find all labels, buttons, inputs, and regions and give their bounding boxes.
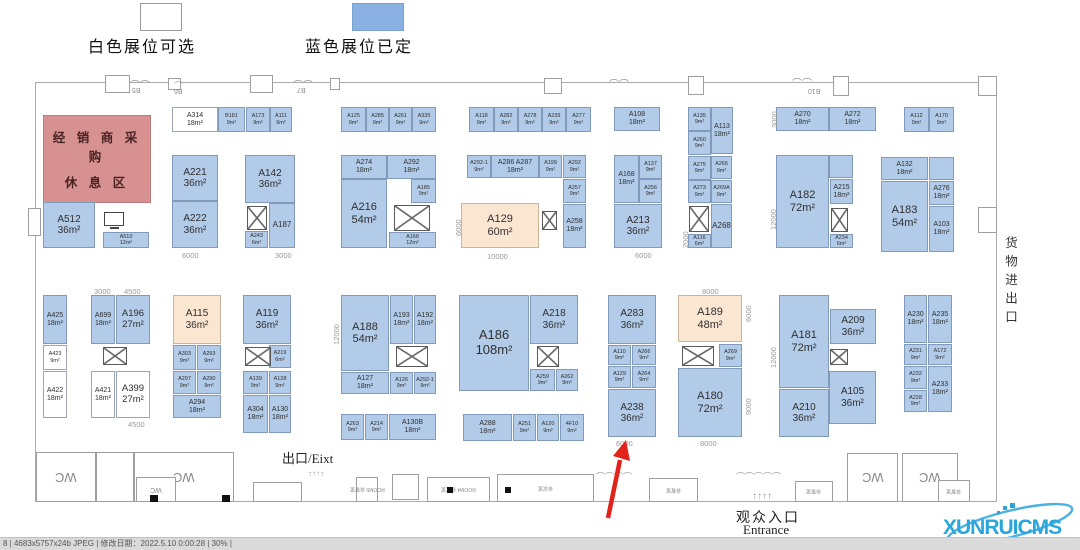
booth-A181[interactable]: A18172m² xyxy=(779,295,829,388)
booth-id: A115 xyxy=(186,308,209,319)
crossbox-icon xyxy=(542,211,557,230)
legend-available-label: 白色展位可选 xyxy=(88,33,196,57)
booth-area: 36m² xyxy=(627,226,650,237)
booth-A297[interactable]: A2979m² xyxy=(173,371,196,394)
booth-id: A222 xyxy=(183,213,206,224)
door-arc-deco: ︵︵ xyxy=(130,70,150,85)
booth-id: A276 xyxy=(933,185,949,193)
rest-area: 经 销 商 采 购 休 息 区 xyxy=(43,115,151,203)
room: 会客室 xyxy=(649,478,698,502)
booth-A290[interactable]: A2909m² xyxy=(197,371,221,394)
booth-A215[interactable]: A21518m² xyxy=(830,179,853,204)
booth-A173[interactable]: A1739m² xyxy=(246,107,270,132)
door-arc-deco: ︵︵ xyxy=(293,70,313,85)
crossbox-icon xyxy=(245,347,271,366)
booth-area: 18m² xyxy=(932,319,948,327)
booth-id: A119 xyxy=(256,308,279,319)
booth-A233[interactable]: A23318m² xyxy=(928,366,952,412)
booth-id: A187 xyxy=(273,221,292,230)
booth-A239[interactable]: A2399m² xyxy=(542,107,566,132)
booth-area: 9m² xyxy=(639,355,648,361)
booth-area: 18m² xyxy=(404,167,420,175)
booth-A294[interactable]: A29418m² xyxy=(173,395,221,418)
booth-id: A233 xyxy=(932,381,948,389)
booth-area: 27m² xyxy=(122,395,144,406)
booth-area: 9m² xyxy=(538,380,547,386)
monitor-icon xyxy=(104,212,124,226)
booth-area: 9m² xyxy=(726,356,735,362)
booth-A139[interactable]: A1399m² xyxy=(243,371,268,394)
booth-A185[interactable]: A1859m² xyxy=(411,179,436,203)
booth-area: 9m² xyxy=(912,120,921,126)
booth-id: A142 xyxy=(258,168,281,179)
dimension-label: 8000 xyxy=(700,439,717,448)
booth-A132[interactable]: A13218m² xyxy=(881,157,928,180)
booth-area: 6m² xyxy=(275,357,284,363)
door-arc-deco: ︵︵ xyxy=(792,68,812,83)
booth-area: 9m² xyxy=(935,355,944,361)
booth-id: A421 xyxy=(95,387,111,395)
booth-A189[interactable]: A18948m² xyxy=(678,295,742,342)
booth-A269[interactable]: A2699m² xyxy=(719,344,742,367)
logo-text: XUNRUICMS xyxy=(943,516,1062,539)
booth-id: A168 xyxy=(618,171,634,179)
booth-area: 36m² xyxy=(842,327,865,338)
booth-A268[interactable]: A268 xyxy=(711,204,732,248)
room: 会客室 xyxy=(795,481,833,502)
booth-A126[interactable]: A1269m² xyxy=(390,372,413,394)
booth-area: 18m² xyxy=(934,193,950,201)
booth-area: 72m² xyxy=(697,403,722,415)
booth-id: A283 xyxy=(620,308,643,319)
booth-A135[interactable]: A1359m² xyxy=(688,107,711,131)
dimension-label: 6000 xyxy=(182,251,199,260)
booth-id: A130B xyxy=(402,419,423,427)
booth-area: 9m² xyxy=(419,120,428,126)
room: WC xyxy=(36,452,96,502)
booth-A270[interactable]: A27018m² xyxy=(776,107,829,131)
dimension-label: 3000 xyxy=(94,287,111,296)
booth-A116[interactable]: A1166m² xyxy=(688,234,711,248)
booth-id: A180 xyxy=(697,390,723,402)
crossbox-icon xyxy=(394,205,430,231)
booth-area: 9m² xyxy=(204,358,213,364)
room-label: ROOM5 会客室 xyxy=(350,486,385,493)
booth-area: 9m² xyxy=(396,120,405,126)
booth-area: 36m² xyxy=(621,413,644,424)
booth-A113[interactable]: A11318m² xyxy=(711,107,733,154)
booth-id: A304 xyxy=(247,406,263,414)
booth-A265[interactable]: A2659m² xyxy=(711,156,732,179)
booth-A230[interactable]: A23018m² xyxy=(904,295,927,343)
booth-id: A215 xyxy=(833,184,849,192)
booth-A129[interactable]: A1299m² xyxy=(608,366,631,388)
booth-area: 9m² xyxy=(525,120,534,126)
booth-area: 72m² xyxy=(790,202,815,214)
booth-area: 9m² xyxy=(911,355,920,361)
booth-id: A130 xyxy=(272,406,288,414)
booth-area: 9m² xyxy=(253,120,262,126)
booth-A292[interactable]: A2929m² xyxy=(563,155,586,178)
booth-A186[interactable]: A186108m² xyxy=(459,295,529,391)
wall-pillar xyxy=(105,75,130,93)
booth-A219[interactable]: A2196m² xyxy=(269,345,291,368)
booth-area: 18m² xyxy=(795,119,811,127)
booth-A235[interactable]: A23518m² xyxy=(928,295,952,343)
booth-area: 36m² xyxy=(621,320,644,331)
booth-area: 9m² xyxy=(574,120,583,126)
booth-A110[interactable]: A1109m² xyxy=(608,345,631,365)
room: 会客室 xyxy=(938,480,970,502)
booth-id: A182 xyxy=(790,189,816,201)
booth-A193[interactable]: A19318m² xyxy=(390,295,413,344)
booth-A260[interactable]: A2609m² xyxy=(688,131,711,155)
booth-area: 9m² xyxy=(275,383,284,389)
booth-A422[interactable]: A42218m² xyxy=(43,371,67,418)
wall-pillar xyxy=(978,207,997,233)
booth-area: 18m² xyxy=(95,320,111,328)
door-arc-deco: ︵ xyxy=(174,73,183,86)
booth-A115[interactable]: A11536m² xyxy=(173,295,221,344)
booth-A127[interactable]: A12718m² xyxy=(341,372,389,394)
booth-A510[interactable]: A51012m² xyxy=(103,232,149,248)
booth-A168[interactable]: A16812m² xyxy=(389,232,436,248)
booth-area: 9m² xyxy=(372,427,381,433)
booth-id: A422 xyxy=(47,387,63,395)
crossbox-icon xyxy=(396,346,428,367)
booth-A285[interactable]: A2859m² xyxy=(366,107,389,132)
booth-A258[interactable]: A25818m² xyxy=(563,204,586,248)
dimension-label: 6000 xyxy=(454,219,463,236)
dimension-label: 2000 xyxy=(681,231,690,248)
booth-A263[interactable]: A2639m² xyxy=(341,414,364,440)
booth-id: A186 xyxy=(479,328,509,343)
booth-A103[interactable]: A10318m² xyxy=(929,206,954,252)
booth-area: 9m² xyxy=(695,168,704,174)
legend-available-swatch xyxy=(140,3,182,31)
booth-id: A268 xyxy=(712,222,731,231)
booth-area: 9m² xyxy=(695,143,704,149)
rest-area-line1: 经 销 商 采 购 xyxy=(44,127,150,165)
booth-area: 36m² xyxy=(256,320,279,331)
booth-A266[interactable]: A2669m² xyxy=(632,345,656,365)
booth-area: 9m² xyxy=(50,358,59,364)
booth-A180[interactable]: A18072m² xyxy=(678,368,742,437)
booth-A269A[interactable]: A269A9m² xyxy=(711,180,732,203)
dimension-label: 9000 xyxy=(744,398,753,415)
wall-pillar xyxy=(250,75,273,93)
booth-id: A181 xyxy=(791,329,817,341)
booth-id: A183 xyxy=(892,204,918,216)
wall-pillar xyxy=(544,78,562,94)
booth-A210[interactable]: A21036m² xyxy=(779,389,829,437)
booth-area: 9m² xyxy=(373,120,382,126)
booth-A314[interactable]: A31418m² xyxy=(172,107,218,132)
booth-A335[interactable]: A3359m² xyxy=(412,107,436,132)
booth-area: 108m² xyxy=(476,343,513,358)
booth-area: 18m² xyxy=(480,428,496,436)
door-mark xyxy=(150,495,158,502)
booth-area: 6m² xyxy=(695,241,704,247)
booth-A105[interactable]: A10536m² xyxy=(829,371,876,424)
booth-id: A512 xyxy=(57,214,80,225)
booth-A137[interactable]: A1379m² xyxy=(639,155,662,179)
crossbox-icon xyxy=(831,208,848,232)
door-label-B10: B10 xyxy=(808,87,820,94)
booth-A303[interactable]: A3039m² xyxy=(173,345,196,370)
booth-area: 9m² xyxy=(501,120,510,126)
booth-A221[interactable]: A22136m² xyxy=(172,155,218,201)
booth-A264[interactable]: A2649m² xyxy=(632,366,656,388)
booth-id: A209 xyxy=(841,315,864,326)
booth-A168[interactable]: A16818m² xyxy=(614,155,639,203)
booth-area: 9m² xyxy=(419,191,428,197)
dimension-label: 4500 xyxy=(128,420,145,429)
booth-area: 18m² xyxy=(272,414,288,422)
booth-id: A235 xyxy=(932,311,948,319)
door-mark xyxy=(447,487,453,493)
booth-A216[interactable]: A21654m² xyxy=(341,179,387,248)
booth-A234[interactable]: A2346m² xyxy=(830,234,853,248)
booth-A170[interactable]: A1709m² xyxy=(929,107,954,132)
booth-area: 9m² xyxy=(615,355,624,361)
booth-id: A274 xyxy=(356,159,372,167)
dimension-label: 8000 xyxy=(702,287,719,296)
booth-A218[interactable]: A21836m² xyxy=(530,295,578,344)
booth-4F10[interactable]: 4F109m² xyxy=(560,414,584,441)
booth-area: 9m² xyxy=(348,427,357,433)
booth-id: A272 xyxy=(844,111,860,119)
booth-area: 9m² xyxy=(349,120,358,126)
booth-id: A210 xyxy=(792,402,815,413)
booth-area: 9m² xyxy=(546,167,555,173)
booth-area: 9m² xyxy=(420,383,429,389)
booth-area: 18m² xyxy=(417,320,433,328)
booth-area: 18m² xyxy=(908,319,924,327)
booth-area: 9m² xyxy=(717,168,726,174)
booth-A423[interactable]: A4239m² xyxy=(43,345,67,370)
booth-A130[interactable]: A13018m² xyxy=(269,395,291,433)
booth-A399[interactable]: A39927m² xyxy=(116,371,150,418)
booth-A119[interactable]: A11936m² xyxy=(243,295,291,344)
booth-A199[interactable]: A1999m² xyxy=(539,155,562,178)
booth-area: 18m² xyxy=(187,120,203,128)
booth-area: 9m² xyxy=(180,383,189,389)
room-label: WC xyxy=(173,470,195,485)
booth-A183[interactable]: A18354m² xyxy=(881,181,928,252)
crossbox-icon xyxy=(689,206,709,232)
booth-A275[interactable]: A2759m² xyxy=(688,156,711,180)
wall-pillar xyxy=(330,78,340,90)
dimension-label: 4500 xyxy=(124,287,141,296)
floorplan: 白色展位可选 蓝色展位已定 经 销 商 采 购 休 息 区 A31418m²B1… xyxy=(0,0,1080,550)
booth-id: A108 xyxy=(629,111,645,119)
booth-A256[interactable]: A2569m² xyxy=(639,179,662,203)
booth-A512[interactable]: A51236m² xyxy=(43,202,95,248)
room xyxy=(96,452,134,502)
room: ROOM4 会议室 xyxy=(427,477,490,502)
booth-A272[interactable]: A27218m² xyxy=(829,107,876,131)
dimension-label: 12000 xyxy=(769,347,778,368)
booth-A231[interactable]: A2319m² xyxy=(904,344,927,365)
booth-A277[interactable]: A2779m² xyxy=(566,107,591,132)
booth-A213[interactable]: A21336m² xyxy=(614,204,662,248)
booth-B181[interactable]: B1819m² xyxy=(218,107,245,132)
booth-A120[interactable]: A1209m² xyxy=(537,414,559,441)
booth-A112[interactable]: A1129m² xyxy=(904,107,929,132)
booth-id: A258 xyxy=(566,218,582,226)
booth-area: 9m² xyxy=(717,192,726,198)
booth-area: 18m² xyxy=(845,119,861,127)
room-label: WC xyxy=(862,470,884,485)
booth-A243[interactable]: A2436m² xyxy=(245,231,268,248)
legend-booked-swatch xyxy=(352,3,404,31)
booth-A288[interactable]: A28818m² xyxy=(463,414,512,441)
booth-id: A105 xyxy=(841,386,864,397)
door-arc-deco: ⌒⌒⌒⌒⌒ xyxy=(736,470,781,483)
crossbox-icon xyxy=(830,349,848,365)
booth-area: 54m² xyxy=(351,214,376,226)
booth-A111[interactable]: A1119m² xyxy=(270,107,292,132)
booth-A118[interactable]: A1189m² xyxy=(469,107,494,132)
room xyxy=(392,474,419,500)
booth-A128[interactable]: A1289m² xyxy=(269,371,291,394)
booth-A172[interactable]: A1729m² xyxy=(928,344,952,365)
booth-id: A270 xyxy=(794,111,810,119)
dimension-label: 6000 xyxy=(744,305,753,322)
booth-area: 18m² xyxy=(897,169,913,177)
booth-A276[interactable]: A27618m² xyxy=(929,181,954,205)
cargo-door-label: 货物进出口 xyxy=(1001,236,1020,329)
booth-A232[interactable]: A2329m² xyxy=(904,366,927,389)
booth-id: A113 xyxy=(714,123,730,131)
rest-area-line2: 休 息 区 xyxy=(44,172,150,191)
booth-A214[interactable]: A2149m² xyxy=(365,414,388,440)
booth-area: 36m² xyxy=(184,178,207,189)
booth-area: 36m² xyxy=(259,179,282,190)
booth-id: A192 xyxy=(417,312,433,320)
crossbox-icon xyxy=(537,346,559,367)
booth-area: 9m² xyxy=(276,120,285,126)
booth-area: 36m² xyxy=(58,225,81,236)
booth-id: A286 A287 xyxy=(498,159,532,167)
booth-A274[interactable]: A27418m² xyxy=(341,155,387,179)
booth-area: 9m² xyxy=(562,380,571,386)
door-arc-deco: ︵︵ xyxy=(609,69,629,84)
booth-A292-1[interactable]: A292-19m² xyxy=(414,372,436,394)
booth-A182[interactable]: A18272m² xyxy=(776,155,829,248)
room-label: WC xyxy=(55,470,77,485)
booth-area: 18m² xyxy=(932,389,948,397)
booth-area: 18m² xyxy=(189,407,205,415)
booth-area: 6m² xyxy=(837,241,846,247)
booth-area: 18m² xyxy=(934,229,950,237)
booth-A238[interactable]: A23836m² xyxy=(608,389,656,437)
booth-id: A103 xyxy=(933,221,949,229)
booth-id: A129 xyxy=(487,213,513,225)
booth-A292[interactable]: A29218m² xyxy=(387,155,436,179)
booth-A108[interactable]: A10818m² xyxy=(614,107,660,131)
booth-A699[interactable]: A69918m² xyxy=(91,295,115,344)
booth-A282[interactable]: A2829m² xyxy=(494,107,518,132)
booth-A251[interactable]: A2519m² xyxy=(513,414,536,441)
booth-area: 9m² xyxy=(639,377,648,383)
dimension-label: 3000 xyxy=(770,111,779,128)
booth-A125[interactable]: A1259m² xyxy=(341,107,366,132)
booth-area: 54m² xyxy=(892,217,917,229)
booth-A304[interactable]: A30418m² xyxy=(243,395,268,433)
booth-A130B[interactable]: A130B18m² xyxy=(389,414,436,440)
booth-id: A196 xyxy=(122,309,144,320)
booth-A262[interactable]: A2629m² xyxy=(556,369,578,391)
booth-A293[interactable]: A2939m² xyxy=(197,345,221,370)
booth-A261[interactable]: A2619m² xyxy=(389,107,412,132)
booth-area: 9m² xyxy=(911,401,920,407)
booth-id: A132 xyxy=(896,161,912,169)
booth-A209[interactable]: A20936m² xyxy=(830,309,876,344)
booth-area: 9m² xyxy=(397,383,406,389)
booth-A283[interactable]: A28336m² xyxy=(608,295,656,344)
booth-A425[interactable]: A42518m² xyxy=(43,295,67,344)
booth-area: 18m² xyxy=(356,167,372,175)
booth-A142[interactable]: A14236m² xyxy=(245,155,295,203)
booth-area: 9m² xyxy=(204,383,213,389)
booth-id: A213 xyxy=(626,215,649,226)
booth-area: 36m² xyxy=(793,413,816,424)
booth-A257[interactable]: A2579m² xyxy=(563,179,586,203)
booth-area: 54m² xyxy=(352,333,377,345)
exit-label: 出口/Eixt xyxy=(282,448,333,467)
booth-A273[interactable]: A2739m² xyxy=(688,180,711,203)
booth-id: A314 xyxy=(187,112,203,120)
room-label: 会客室 xyxy=(666,487,681,494)
entrance-label-en: Entrance xyxy=(743,522,789,538)
booth-area: 18m² xyxy=(619,179,635,187)
door-mark xyxy=(505,487,511,493)
wall-pillar xyxy=(833,76,849,96)
booth-A196[interactable]: A19627m² xyxy=(116,295,150,344)
booth-A259[interactable]: A2599m² xyxy=(530,369,555,391)
booth-area: 9m² xyxy=(180,358,189,364)
booth-area: 12m² xyxy=(406,240,419,246)
booth-A278[interactable]: A2789m² xyxy=(518,107,542,132)
booth-A292-1[interactable]: A292-19m² xyxy=(467,155,491,178)
booth-area: 18m² xyxy=(567,226,583,234)
booth-A222[interactable]: A22236m² xyxy=(172,201,218,248)
booth-area: 9m² xyxy=(474,167,483,173)
booth-A286-A287[interactable]: A286 A28718m² xyxy=(491,155,539,178)
booth-A192[interactable]: A19218m² xyxy=(414,295,436,344)
booth-area: 9m² xyxy=(570,191,579,197)
booth-area: 9m² xyxy=(477,120,486,126)
booth-area: 18m² xyxy=(629,119,645,127)
booth-id: A699 xyxy=(95,312,111,320)
booth-area: 9m² xyxy=(695,119,704,125)
booth-A129[interactable]: A12960m² xyxy=(461,203,539,248)
booth-A188[interactable]: A18854m² xyxy=(341,295,389,371)
booth-A228[interactable]: A2289m² xyxy=(904,390,927,412)
crossbox-icon xyxy=(103,347,127,365)
room-label: WC xyxy=(150,486,162,493)
booth-A187[interactable]: A187 xyxy=(269,203,295,248)
booth-area: 9m² xyxy=(520,428,529,434)
booth-id: A399 xyxy=(122,384,144,395)
dimension-label: 10000 xyxy=(487,252,508,261)
booth-area: 9m² xyxy=(251,383,260,389)
door-label-B6: B6 xyxy=(174,87,183,94)
booth-A421[interactable]: A42118m² xyxy=(91,371,115,418)
booth-id: A230 xyxy=(907,311,923,319)
